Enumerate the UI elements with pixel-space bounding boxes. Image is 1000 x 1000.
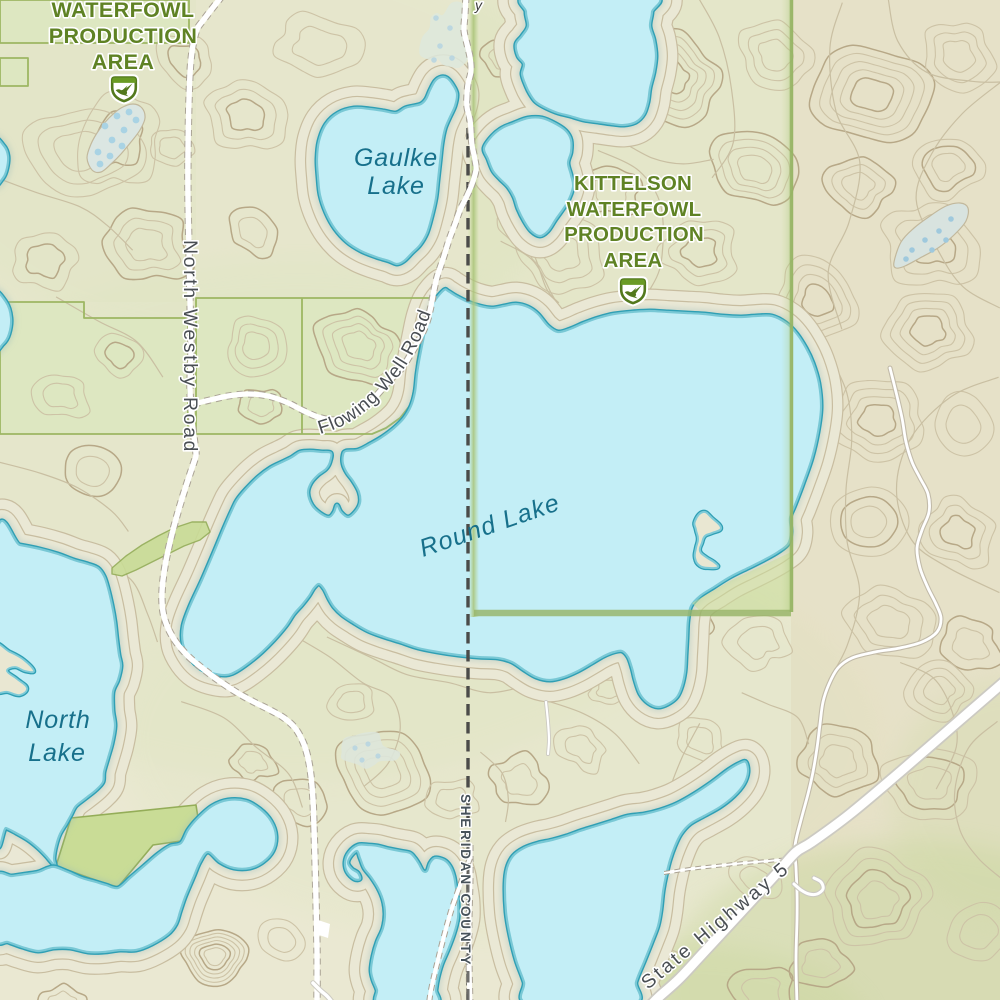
svg-text:y: y [474, 0, 483, 13]
svg-text:AREA: AREA [92, 50, 155, 74]
svg-text:Lake: Lake [28, 739, 85, 767]
svg-text:WATERFOWL: WATERFOWL [52, 0, 195, 22]
svg-text:AREA: AREA [604, 249, 663, 272]
svg-text:Gaulke: Gaulke [354, 144, 438, 172]
svg-text:WATERFOWL: WATERFOWL [567, 198, 702, 221]
svg-text:Lake: Lake [367, 172, 424, 200]
svg-text:North: North [25, 706, 90, 734]
svg-text:PRODUCTION: PRODUCTION [564, 223, 704, 246]
svg-text:PRODUCTION: PRODUCTION [49, 24, 198, 48]
svg-text:KITTELSON: KITTELSON [574, 172, 692, 195]
svg-text:SHERIDAN COUNTY: SHERIDAN COUNTY [458, 794, 473, 967]
svg-text:North Westby Road: North Westby Road [179, 240, 201, 454]
